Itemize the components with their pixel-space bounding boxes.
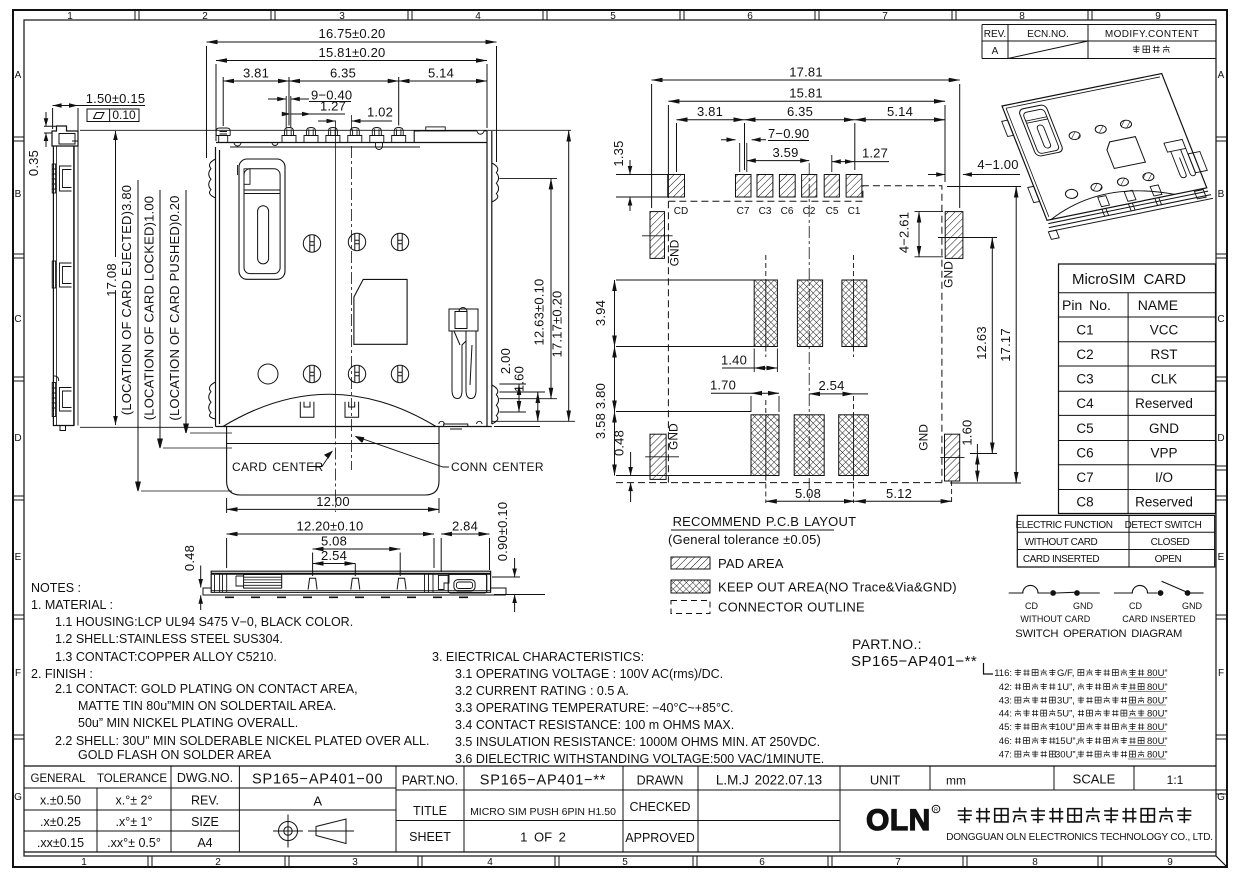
- svg-text:OLN: OLN: [866, 804, 931, 837]
- svg-text:B: B: [1218, 189, 1225, 200]
- svg-text:PAD AREA: PAD AREA: [718, 556, 784, 571]
- svg-text:x.°± 2°: x.°± 2°: [115, 794, 152, 808]
- svg-text:12.20±0.10: 12.20±0.10: [297, 519, 364, 534]
- svg-text:9: 9: [1167, 857, 1173, 868]
- svg-text:7: 7: [882, 11, 888, 22]
- svg-text:CD: CD: [1025, 601, 1038, 611]
- svg-text:17.17±0.20: 17.17±0.20: [550, 291, 565, 358]
- svg-text:.x°± 1°: .x°± 1°: [115, 815, 152, 829]
- svg-text:C3: C3: [759, 206, 772, 217]
- svg-text:NAME: NAME: [1138, 297, 1178, 313]
- svg-text:C7: C7: [1076, 470, 1093, 485]
- svg-text:SHEET: SHEET: [409, 830, 451, 844]
- svg-text:8: 8: [1019, 11, 1025, 22]
- svg-text:45:: 45:: [999, 722, 1012, 733]
- svg-text:CD: CD: [1129, 601, 1142, 611]
- svg-text:SP165−AP401−00: SP165−AP401−00: [252, 772, 383, 788]
- svg-text:.xx°± 0.5°: .xx°± 0.5°: [107, 836, 161, 850]
- svg-text:7−0.90: 7−0.90: [768, 126, 809, 141]
- svg-text:1.1 HOUSING:LCP UL94 S475: 1.1 HOUSING:LCP UL94 S475 V−0, BLACK COL…: [55, 615, 353, 629]
- svg-text:mm: mm: [946, 774, 966, 788]
- svg-text:PART.NO.: PART.NO.: [402, 774, 459, 788]
- svg-text:1.35: 1.35: [611, 140, 626, 166]
- svg-text:(LOCATION OF CARD EJECTED)3.80: (LOCATION OF CARD EJECTED)3.80: [119, 185, 134, 415]
- svg-text:3: 3: [352, 857, 358, 868]
- svg-text:GND: GND: [941, 261, 955, 288]
- svg-text:116:: 116:: [994, 668, 1012, 679]
- svg-text:.xx±0.15: .xx±0.15: [37, 836, 84, 850]
- svg-text:VPP: VPP: [1150, 446, 1177, 461]
- svg-text:0.90±0.10: 0.90±0.10: [495, 502, 510, 562]
- svg-text:GND: GND: [1182, 601, 1203, 611]
- svg-text:G/F,: G/F,: [1057, 668, 1074, 679]
- svg-text:4: 4: [487, 857, 493, 868]
- svg-text:(LOCATION OF CARD PUSHED)0.20: (LOCATION OF CARD PUSHED)0.20: [167, 195, 182, 420]
- svg-text:12.00: 12.00: [316, 494, 350, 509]
- svg-text:0.48: 0.48: [182, 545, 197, 571]
- svg-text:SCALE: SCALE: [1073, 772, 1116, 787]
- svg-text:3.4 CONTACT RESISTANCE: 100: 3.4 CONTACT RESISTANCE: 100 m OHMS MAX.: [455, 718, 734, 732]
- svg-text:WITHOUT CARD: WITHOUT CARD: [1025, 537, 1098, 548]
- svg-text:1.2 SHELL:STAINLESS STEEL S: 1.2 SHELL:STAINLESS STEEL SUS304.: [55, 632, 283, 646]
- svg-text:5: 5: [610, 11, 616, 22]
- svg-text:C3: C3: [1076, 372, 1093, 387]
- svg-text:CARD CENTER: CARD CENTER: [232, 460, 324, 474]
- svg-text:ECN.NO.: ECN.NO.: [1027, 29, 1069, 40]
- svg-text:50u” MIN NICKEL PLATING OV: 50u” MIN NICKEL PLATING OVERALL.: [78, 716, 298, 730]
- svg-text:SP165−AP401−**: SP165−AP401−**: [851, 653, 977, 670]
- svg-text:SIZE: SIZE: [191, 815, 219, 829]
- svg-text:(LOCATION OF CARD LOCKED)1.00: (LOCATION OF CARD LOCKED)1.00: [142, 196, 157, 420]
- svg-text:1.50±0.15: 1.50±0.15: [86, 91, 146, 106]
- svg-text:5.08: 5.08: [795, 486, 821, 501]
- svg-text:0.48: 0.48: [611, 430, 626, 456]
- svg-text:Reserved: Reserved: [1135, 495, 1193, 510]
- svg-text:C2: C2: [1076, 347, 1093, 362]
- svg-text:L.M.J 2022.07.13: L.M.J 2022.07.13: [716, 773, 822, 788]
- svg-text:GND: GND: [1149, 421, 1179, 436]
- svg-text:C4: C4: [1076, 396, 1094, 411]
- svg-text:Reserved: Reserved: [1135, 396, 1193, 411]
- svg-text:C: C: [1217, 314, 1224, 325]
- svg-text:RST: RST: [1151, 347, 1178, 362]
- svg-text:F: F: [15, 668, 21, 679]
- svg-text:47:: 47:: [999, 750, 1012, 761]
- svg-text:30U”,: 30U”,: [1055, 750, 1078, 761]
- svg-text:43:: 43:: [999, 696, 1012, 707]
- svg-text:WITHOUT CARD: WITHOUT CARD: [1020, 614, 1090, 624]
- svg-text:CLK: CLK: [1151, 372, 1177, 387]
- svg-text:3.2 CURRENT RATING : 0.5 A.: 3.2 CURRENT RATING : 0.5 A.: [455, 684, 629, 698]
- svg-text:.x±0.25: .x±0.25: [40, 815, 81, 829]
- svg-text:1: 1: [67, 11, 73, 22]
- svg-text:4: 4: [475, 11, 481, 22]
- svg-text:2: 2: [202, 11, 208, 22]
- svg-text:44:: 44:: [999, 709, 1012, 720]
- svg-text:46:: 46:: [999, 736, 1012, 747]
- svg-text:CD: CD: [674, 206, 688, 217]
- svg-text:1. MATERIAL :: 1. MATERIAL :: [31, 598, 113, 612]
- svg-text:4−2.61: 4−2.61: [897, 212, 912, 253]
- svg-text:1.60: 1.60: [512, 366, 527, 392]
- svg-text:5: 5: [622, 857, 628, 868]
- svg-text:C1: C1: [848, 206, 861, 217]
- svg-text:15.81±0.20: 15.81±0.20: [319, 45, 386, 60]
- svg-text:CHECKED: CHECKED: [629, 800, 690, 814]
- svg-text:0.35: 0.35: [26, 150, 41, 176]
- svg-text:1.3 CONTACT:COPPER ALLOY C5: 1.3 CONTACT:COPPER ALLOY C5210.: [55, 650, 277, 664]
- svg-text:7: 7: [895, 857, 901, 868]
- svg-text:C1: C1: [1076, 323, 1093, 338]
- svg-text:G: G: [1217, 792, 1225, 803]
- svg-text:F: F: [1218, 668, 1224, 679]
- svg-text:5.14: 5.14: [887, 104, 913, 119]
- svg-text:3.5 INSULATION RESISTANCE:: 3.5 INSULATION RESISTANCE: 1000M OHMS MI…: [455, 735, 820, 749]
- svg-text:3.6 DIELECTRIC WITHSTANDING: 3.6 DIELECTRIC WITHSTANDING VOLTAGE:500 …: [455, 752, 824, 766]
- svg-text:6: 6: [759, 857, 765, 868]
- svg-text:3.58: 3.58: [593, 413, 608, 439]
- svg-text:1 OF 2: 1 OF 2: [520, 830, 566, 845]
- svg-text:A: A: [992, 46, 999, 57]
- svg-text:CARD INSERTED: CARD INSERTED: [1023, 554, 1099, 565]
- svg-text:3.94: 3.94: [593, 300, 608, 326]
- svg-text:SP165−AP401−**: SP165−AP401−**: [480, 773, 607, 789]
- svg-text:CONN CENTER: CONN CENTER: [451, 460, 544, 474]
- svg-text:5.12: 5.12: [886, 486, 912, 501]
- svg-text:12.63±0.10: 12.63±0.10: [532, 279, 547, 346]
- svg-text:D: D: [1217, 433, 1224, 444]
- svg-text:2.84: 2.84: [452, 519, 478, 534]
- svg-text:9: 9: [1155, 11, 1161, 22]
- svg-text:2. FINISH :: 2. FINISH :: [31, 667, 93, 681]
- svg-text:2.1 CONTACT: GOLD PLATING: 2.1 CONTACT: GOLD PLATING ON CONTACT ARE…: [55, 682, 358, 696]
- svg-text:A4: A4: [197, 836, 212, 850]
- svg-text:A: A: [15, 70, 22, 81]
- svg-text:8: 8: [1032, 857, 1038, 868]
- svg-text:E: E: [1218, 552, 1225, 563]
- svg-text:CONNECTOR OUTLINE: CONNECTOR OUTLINE: [718, 600, 865, 615]
- svg-text:1.60: 1.60: [959, 420, 974, 446]
- svg-text:15U”,: 15U”,: [1055, 736, 1078, 747]
- svg-text:1.70: 1.70: [710, 378, 736, 393]
- svg-text:17.08: 17.08: [104, 263, 119, 297]
- svg-text:5.14: 5.14: [428, 66, 454, 81]
- svg-text:(General tolerance ±0.05): (General tolerance ±0.05): [668, 532, 821, 547]
- svg-text:2.54: 2.54: [321, 548, 347, 563]
- svg-text:42:: 42:: [999, 682, 1012, 693]
- svg-text:GND: GND: [1073, 601, 1094, 611]
- svg-text:1.02: 1.02: [367, 105, 393, 120]
- svg-text:C5: C5: [826, 206, 839, 217]
- svg-text:15.81: 15.81: [789, 86, 823, 101]
- svg-text:REV.: REV.: [191, 794, 219, 808]
- svg-text:SWITCH OPERATION DIAGRAM: SWITCH OPERATION DIAGRAM: [1015, 628, 1182, 640]
- svg-text:0.10: 0.10: [112, 108, 136, 122]
- svg-text:KEEP OUT AREA(NO Trace&Via&GND: KEEP OUT AREA(NO Trace&Via&GND): [718, 580, 957, 595]
- svg-text:R: R: [934, 808, 938, 814]
- svg-text:3.81: 3.81: [243, 66, 269, 81]
- svg-text:3U”,: 3U”,: [1057, 696, 1075, 707]
- svg-text:APPROVED: APPROVED: [625, 831, 694, 845]
- svg-text:DWG.NO.: DWG.NO.: [177, 771, 233, 785]
- svg-text:6: 6: [747, 11, 753, 22]
- svg-text:C5: C5: [1076, 421, 1093, 436]
- svg-text:C: C: [14, 314, 21, 325]
- svg-text:4−1.00: 4−1.00: [977, 157, 1018, 172]
- svg-text:1.40: 1.40: [721, 353, 747, 368]
- svg-text:ELECTRIC FUNCTION: ELECTRIC FUNCTION: [1015, 520, 1112, 531]
- svg-text:2.2 SHELL: 30U” MIN SOLDER: 2.2 SHELL: 30U” MIN SOLDERABLE NICKEL PL…: [55, 734, 429, 748]
- svg-text:DONGGUAN OLN ELECTRONICS TECHN: DONGGUAN OLN ELECTRONICS TECHNOLOGY CO.,…: [946, 832, 1213, 843]
- svg-text:GND: GND: [667, 239, 681, 266]
- svg-text:C7: C7: [737, 206, 750, 217]
- svg-text:A: A: [313, 794, 322, 809]
- svg-text:1: 1: [81, 857, 87, 868]
- svg-text:RECOMMEND P.C.B LAYOUT: RECOMMEND P.C.B LAYOUT: [673, 514, 857, 529]
- svg-text:5U”,: 5U”,: [1057, 709, 1075, 720]
- svg-text:12.63: 12.63: [974, 326, 989, 360]
- svg-text:OPEN: OPEN: [1155, 554, 1182, 565]
- svg-text:GOLD FLASH ON SOLDER AREA: GOLD FLASH ON SOLDER AREA: [78, 748, 272, 762]
- svg-text:2.54: 2.54: [818, 378, 844, 393]
- svg-text:17.81: 17.81: [789, 65, 823, 80]
- svg-text:1.27: 1.27: [320, 99, 346, 114]
- svg-text:3.81: 3.81: [697, 104, 723, 119]
- svg-text:CLOSED: CLOSED: [1151, 537, 1190, 548]
- svg-text:D: D: [14, 433, 21, 444]
- svg-text:6.35: 6.35: [330, 66, 356, 81]
- svg-text:C8: C8: [1076, 495, 1093, 510]
- svg-text:I/O: I/O: [1155, 470, 1173, 485]
- svg-text:E: E: [15, 552, 22, 563]
- svg-text:GND: GND: [917, 424, 931, 451]
- svg-text:3.59: 3.59: [772, 145, 798, 160]
- svg-text:GENERAL: GENERAL: [31, 773, 87, 785]
- svg-text:3.3 OPERATING TEMPERATURE: −: 3.3 OPERATING TEMPERATURE: −40°C~+85°C.: [455, 701, 734, 715]
- svg-text:10U”,: 10U”,: [1055, 722, 1078, 733]
- svg-text:Pin No.: Pin No.: [1062, 297, 1111, 313]
- svg-text:x.±0.50: x.±0.50: [40, 794, 81, 808]
- svg-text:3. EIECTRICAL CHARACTERISTIC: 3. EIECTRICAL CHARACTERISTICS:: [432, 650, 644, 664]
- svg-text:TITLE: TITLE: [413, 804, 447, 818]
- svg-text:5.08: 5.08: [321, 534, 347, 549]
- svg-text:MATTE TIN 80u”MIN ON SOLDE: MATTE TIN 80u”MIN ON SOLDERTAIL AREA.: [78, 699, 336, 713]
- svg-text:1:1: 1:1: [1167, 773, 1184, 787]
- svg-text:MicroSIM CARD: MicroSIM CARD: [1072, 271, 1186, 288]
- svg-text:3: 3: [339, 11, 345, 22]
- svg-text:MICRO SIM PUSH 6PIN H1.50: MICRO SIM PUSH 6PIN H1.50: [470, 806, 616, 818]
- svg-text:G: G: [14, 792, 22, 803]
- svg-text:C6: C6: [1076, 446, 1093, 461]
- svg-text:16.75±0.20: 16.75±0.20: [319, 26, 386, 41]
- svg-text:6.35: 6.35: [787, 104, 813, 119]
- svg-text:C6: C6: [781, 206, 794, 217]
- svg-text:NOTES :: NOTES :: [31, 581, 81, 595]
- svg-text:TOLERANCE: TOLERANCE: [97, 773, 167, 785]
- svg-text:3.1 OPERATING VOLTAGE : 100V: 3.1 OPERATING VOLTAGE : 100V AC(rms)/DC.: [455, 667, 723, 681]
- svg-text:MODIFY.CONTENT: MODIFY.CONTENT: [1105, 29, 1199, 40]
- svg-text:PART.NO.:: PART.NO.:: [852, 636, 922, 652]
- svg-text:DRAWN: DRAWN: [637, 774, 684, 788]
- svg-text:CARD INSERTED: CARD INSERTED: [1122, 614, 1196, 624]
- svg-text:17.17: 17.17: [998, 328, 1013, 362]
- svg-text:2: 2: [215, 857, 221, 868]
- svg-text:1U”,: 1U”,: [1057, 682, 1075, 693]
- svg-text:B: B: [15, 189, 22, 200]
- svg-text:VCC: VCC: [1150, 323, 1179, 338]
- svg-text:A: A: [1218, 70, 1225, 81]
- svg-text:REV.: REV.: [984, 29, 1006, 40]
- svg-text:DETECT SWITCH: DETECT SWITCH: [1125, 520, 1202, 531]
- svg-text:UNIT: UNIT: [870, 773, 900, 788]
- svg-text:1.27: 1.27: [862, 146, 888, 161]
- svg-text:3.80: 3.80: [593, 383, 608, 409]
